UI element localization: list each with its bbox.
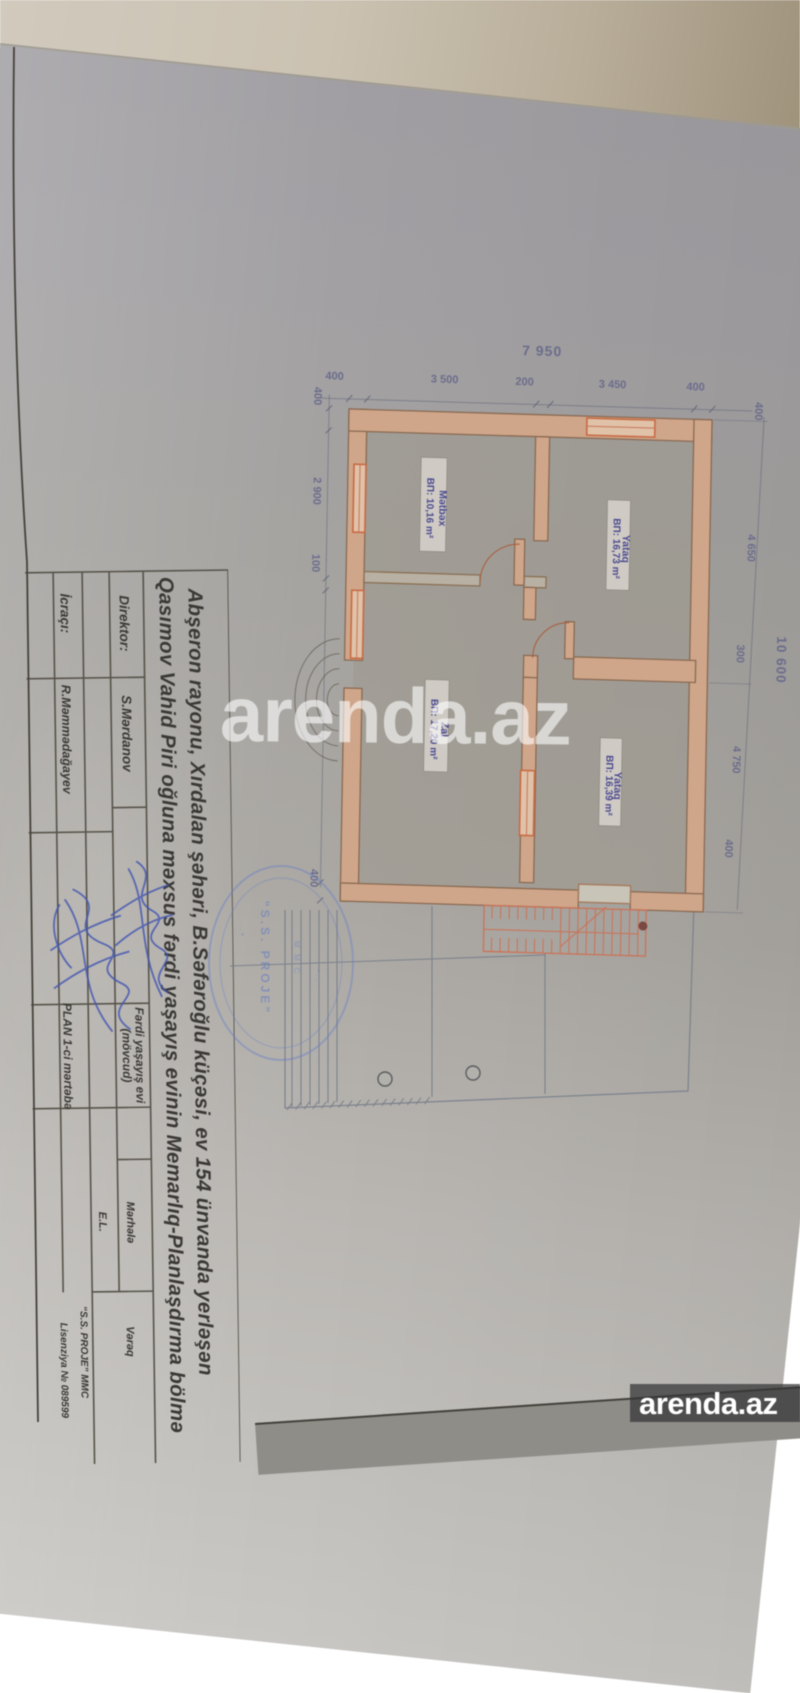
svg-text:400: 400 [325,370,344,383]
svg-text:3 500: 3 500 [431,373,459,386]
svg-text:400: 400 [752,402,764,421]
svg-text:BП: 16,73 m²: BП: 16,73 m² [610,518,622,580]
svg-text:M M C: M M C [292,940,302,975]
svg-text:200: 200 [515,376,534,389]
svg-text:4 750: 4 750 [730,746,742,774]
svg-text:300: 300 [734,644,746,663]
svg-text:“S.S. PROJE”: “S.S. PROJE” [258,901,272,1016]
svg-text:Mətbəx: Mətbəx [436,490,449,527]
svg-text:10 600: 10 600 [773,636,789,684]
svg-text:BП: 16,39 m²: BП: 16,39 m² [602,755,614,817]
svg-text:. . •: . . • [238,924,247,936]
svg-text:4 650: 4 650 [745,534,757,562]
svg-text:3 450: 3 450 [599,378,627,391]
svg-text:400: 400 [311,387,323,406]
svg-text:BП: 10,16 m²: BП: 10,16 m² [423,478,435,540]
svg-text:400: 400 [722,839,734,858]
svg-text:• . .: • . . [314,969,323,981]
svg-text:7 950: 7 950 [522,342,562,359]
svg-text:400: 400 [307,869,319,888]
svg-text:2 900: 2 900 [310,477,322,505]
svg-text:100: 100 [309,554,321,573]
svg-text:400: 400 [686,381,705,394]
